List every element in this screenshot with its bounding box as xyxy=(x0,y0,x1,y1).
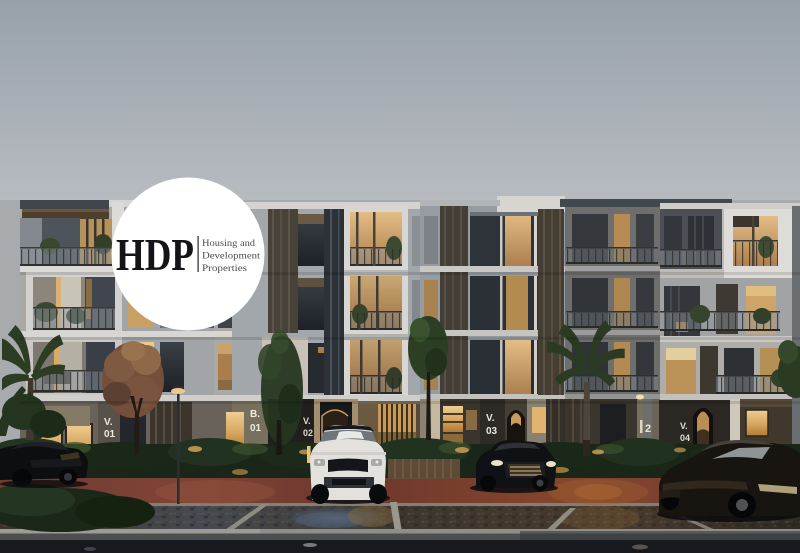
svg-text:Housing and: Housing and xyxy=(202,238,256,248)
svg-text:01: 01 xyxy=(250,423,262,434)
svg-text:04: 04 xyxy=(680,433,690,443)
svg-text:V.: V. xyxy=(303,416,311,426)
svg-text:V.: V. xyxy=(486,413,495,424)
svg-text:Properties: Properties xyxy=(202,263,248,273)
svg-text:B.: B. xyxy=(250,409,260,420)
svg-text:V.: V. xyxy=(680,421,688,431)
svg-text:2: 2 xyxy=(645,423,651,435)
svg-text:V.: V. xyxy=(104,417,113,428)
svg-text:HDP: HDP xyxy=(116,229,194,280)
svg-text:Development: Development xyxy=(202,251,261,261)
svg-text:02: 02 xyxy=(303,428,313,438)
svg-text:03: 03 xyxy=(486,426,498,437)
svg-text:01: 01 xyxy=(104,429,116,440)
